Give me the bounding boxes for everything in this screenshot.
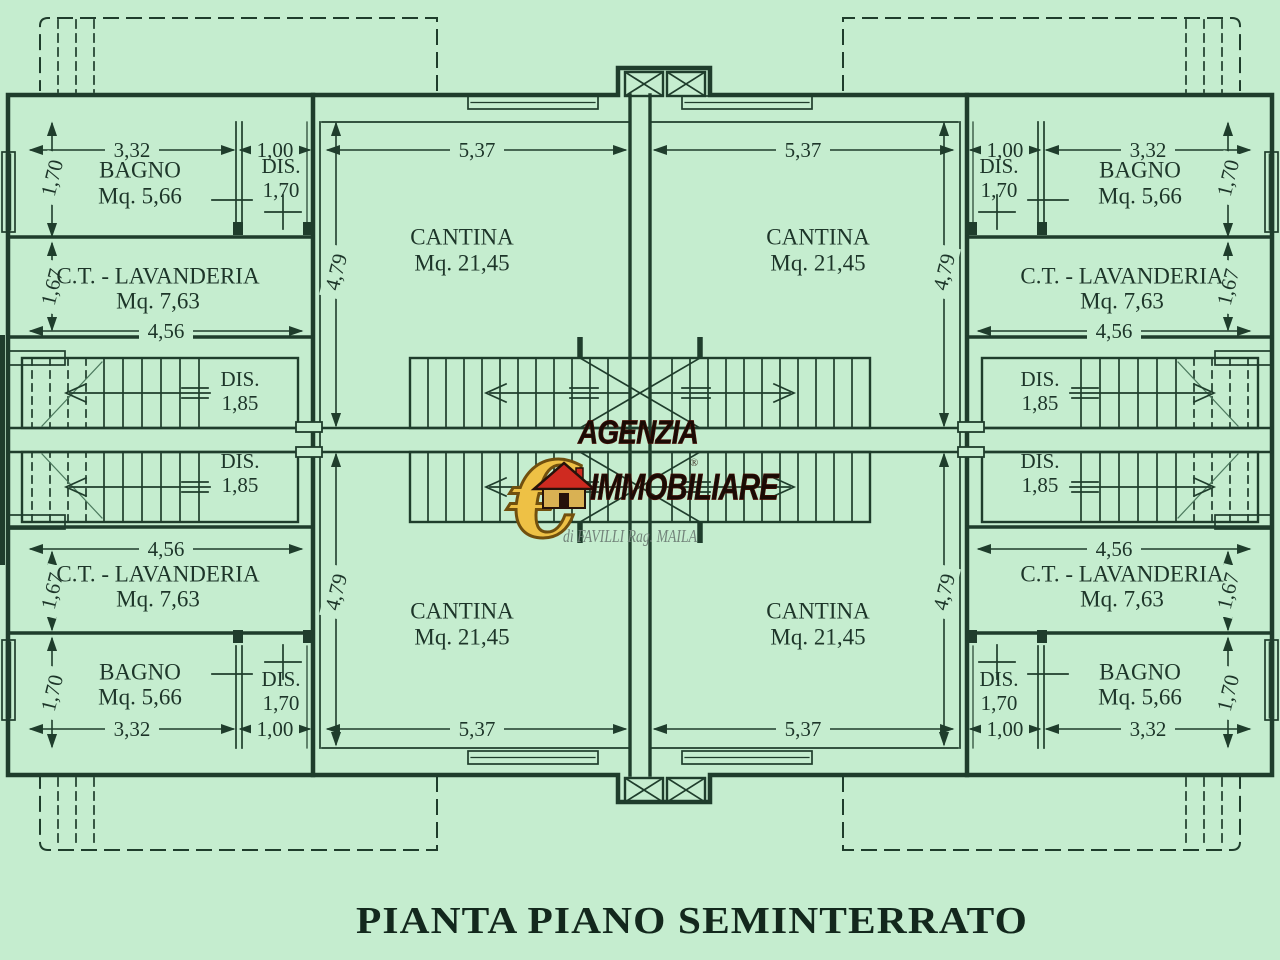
room-area-bagno-bottom-right: Mq. 5,66 — [1098, 685, 1182, 710]
room-area-cantina-bottom-right: Mq. 21,45 — [770, 625, 865, 650]
dim-label: 4,56 — [148, 537, 185, 561]
dim-label: 5,37 — [459, 138, 496, 162]
room-height-dis-top-right: 1,70 — [981, 178, 1018, 202]
agency-tagline: di FAVILLI Rag. MAILA — [563, 526, 698, 546]
room-label-bagno-top-right: BAGNO — [1099, 158, 1181, 183]
room-area-ct-top-right: Mq. 7,63 — [1080, 289, 1164, 314]
room-area-cantina-top-right: Mq. 21,45 — [770, 251, 865, 276]
room-area-ct-bottom-right: Mq. 7,63 — [1080, 587, 1164, 612]
room-label-dis-bottom-left: DIS. — [261, 667, 300, 691]
room-label-dis-corridor-2-right: DIS. — [1020, 449, 1059, 473]
room-area-bagno-bottom-left: Mq. 5,66 — [98, 685, 182, 710]
room-label-cantina-bottom-left: CANTINA — [410, 599, 514, 624]
floor-plan-drawing: 3,32 1,00 5,37 5,37 1,00 3,32 — [0, 0, 1280, 960]
room-height-dis-bottom-right: 1,70 — [981, 691, 1018, 715]
room-height-dis-top-left: 1,70 — [263, 178, 300, 202]
room-label-cantina-top-left: CANTINA — [410, 225, 514, 250]
scan-edge-mark — [0, 335, 5, 565]
agency-name-line1: AGENZIA — [577, 414, 698, 451]
dim-label: 4,56 — [1096, 319, 1133, 343]
room-width-dis-corridor-1-right: 1,85 — [1022, 391, 1059, 415]
room-width-dis-corridor-1-left: 1,85 — [222, 391, 259, 415]
room-area-bagno-top-right: Mq. 5,66 — [1098, 184, 1182, 209]
room-label-cantina-bottom-right: CANTINA — [766, 599, 870, 624]
room-label-bagno-bottom-left: BAGNO — [99, 660, 181, 685]
room-label-dis-corridor-2-left: DIS. — [220, 449, 259, 473]
room-label-dis-top-right: DIS. — [979, 154, 1018, 178]
registered-mark: ® — [690, 457, 698, 469]
agency-name-line2: IMMOBILIARE — [590, 467, 780, 508]
room-label-dis-corridor-1-right: DIS. — [1020, 367, 1059, 391]
dim-label: 5,37 — [785, 717, 822, 741]
dim-label: 5,37 — [785, 138, 822, 162]
dim-label: 1,00 — [987, 717, 1024, 741]
room-height-dis-bottom-left: 1,70 — [263, 691, 300, 715]
room-label-dis-top-left: DIS. — [261, 154, 300, 178]
room-label-cantina-top-right: CANTINA — [766, 225, 870, 250]
room-label-ct-top-left: C.T. - LAVANDERIA — [56, 264, 260, 289]
room-width-dis-corridor-2-left: 1,85 — [222, 473, 259, 497]
room-label-ct-top-right: C.T. - LAVANDERIA — [1020, 264, 1224, 289]
dim-label: 4,56 — [148, 319, 185, 343]
room-area-ct-bottom-left: Mq. 7,63 — [116, 587, 200, 612]
room-label-ct-bottom-right: C.T. - LAVANDERIA — [1020, 562, 1224, 587]
room-label-bagno-bottom-right: BAGNO — [1099, 660, 1181, 685]
page-title: PIANTA PIANO SEMINTERRATO — [356, 900, 1028, 942]
dim-label: 3,32 — [114, 717, 151, 741]
room-label-bagno-top-left: BAGNO — [99, 158, 181, 183]
room-width-dis-corridor-2-right: 1,85 — [1022, 473, 1059, 497]
room-label-dis-corridor-1-left: DIS. — [220, 367, 259, 391]
room-label-ct-bottom-left: C.T. - LAVANDERIA — [56, 562, 260, 587]
room-area-cantina-bottom-left: Mq. 21,45 — [414, 625, 509, 650]
dim-label: 4,56 — [1096, 537, 1133, 561]
room-label-dis-bottom-right: DIS. — [979, 667, 1018, 691]
room-area-ct-top-left: Mq. 7,63 — [116, 289, 200, 314]
dim-label: 5,37 — [459, 717, 496, 741]
dim-label: 1,00 — [257, 717, 294, 741]
dim-label: 3,32 — [1130, 717, 1167, 741]
room-area-cantina-top-left: Mq. 21,45 — [414, 251, 509, 276]
room-area-bagno-top-left: Mq. 5,66 — [98, 184, 182, 209]
